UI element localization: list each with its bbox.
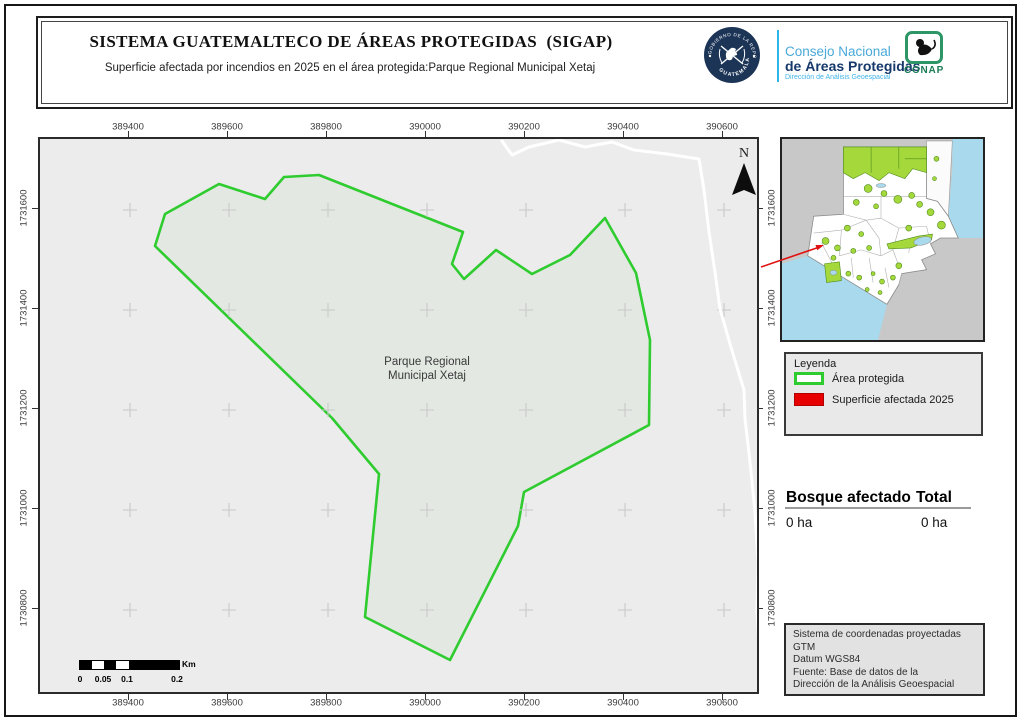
axis-tick bbox=[722, 694, 723, 700]
axis-tick bbox=[32, 308, 38, 309]
axis-tick bbox=[757, 308, 763, 309]
axis-tick bbox=[32, 508, 38, 509]
conap-logo-label: CONAP bbox=[901, 65, 947, 76]
coordinate-system-info-box: Sistema de coordenadas proyectadas GTM D… bbox=[784, 623, 985, 696]
stats-header-bosque: Bosque afectado bbox=[786, 489, 911, 507]
info-line: Fuente: Base de datos de la bbox=[793, 667, 976, 680]
axis-tick bbox=[524, 131, 525, 137]
map-canvas: Parque Regional Municipal Xetaj N bbox=[40, 139, 757, 692]
y-axis-label-right: 1731600 bbox=[767, 190, 778, 227]
government-seal-icon: GOBIERNO DE LA REPÚBLICA GUATEMALA bbox=[703, 26, 761, 84]
protected-area-polygon bbox=[155, 175, 650, 660]
stats-value-total: 0 ha bbox=[921, 515, 947, 530]
axis-tick bbox=[326, 131, 327, 137]
info-line: Datum WGS84 bbox=[793, 654, 976, 667]
y-axis-label-right: 1731200 bbox=[767, 390, 778, 427]
y-axis-label-right: 1731000 bbox=[767, 490, 778, 527]
conap-logo-icon bbox=[905, 31, 943, 64]
y-axis-label-left: 1731600 bbox=[19, 190, 30, 227]
scale-label-02: 0.2 bbox=[171, 674, 183, 684]
scale-label-0: 0 bbox=[78, 674, 83, 684]
org-department: Dirección de Análisis Geoespacial bbox=[785, 74, 890, 81]
scale-label-01: 0.1 bbox=[121, 674, 133, 684]
affected-area-swatch bbox=[794, 393, 824, 406]
y-axis-label-right: 1730800 bbox=[767, 590, 778, 627]
stats-value-bosque: 0 ha bbox=[786, 515, 812, 530]
axis-tick bbox=[425, 694, 426, 700]
axis-tick bbox=[227, 694, 228, 700]
axis-tick bbox=[32, 408, 38, 409]
axis-tick bbox=[128, 131, 129, 137]
axis-tick bbox=[722, 131, 723, 137]
svg-text:N: N bbox=[739, 146, 749, 161]
legend: Leyenda Área protegida Superficie afecta… bbox=[784, 352, 983, 436]
axis-tick bbox=[623, 694, 624, 700]
page-subtitle: Superficie afectada por incendios en 202… bbox=[60, 62, 640, 74]
protected-area-swatch bbox=[794, 372, 824, 385]
park-label-line2: Municipal Xetaj bbox=[388, 370, 466, 382]
axis-tick bbox=[128, 694, 129, 700]
axis-tick bbox=[227, 131, 228, 137]
axis-tick bbox=[757, 508, 763, 509]
stats-underline bbox=[785, 507, 971, 509]
axis-tick bbox=[32, 208, 38, 209]
main-map: Parque Regional Municipal Xetaj N bbox=[38, 137, 759, 694]
info-line: Sistema de coordenadas proyectadas bbox=[793, 629, 976, 642]
axis-tick bbox=[524, 694, 525, 700]
axis-tick bbox=[32, 608, 38, 609]
stats-header-total: Total bbox=[916, 489, 952, 507]
info-line: Dirección de la Análisis Geoespacial bbox=[793, 679, 976, 692]
axis-tick bbox=[757, 608, 763, 609]
header-divider bbox=[777, 30, 779, 82]
legend-title: Leyenda bbox=[794, 358, 836, 370]
locator-arrow-icon bbox=[755, 238, 835, 274]
page-title: SISTEMA GUATEMALTECO DE ÁREAS PROTEGIDAS… bbox=[36, 32, 666, 52]
legend-item-label: Superficie afectada 2025 bbox=[832, 394, 954, 406]
axis-tick bbox=[757, 408, 763, 409]
y-axis-label-left: 1731000 bbox=[19, 490, 30, 527]
legend-item-label: Área protegida bbox=[832, 373, 904, 385]
org-name-line1: Consejo Nacional bbox=[785, 44, 891, 59]
scale-label-005: 0.05 bbox=[95, 674, 112, 684]
y-axis-label-left: 1731400 bbox=[19, 290, 30, 327]
info-line: GTM bbox=[793, 642, 976, 655]
y-axis-label-left: 1730800 bbox=[19, 590, 30, 627]
axis-tick bbox=[425, 131, 426, 137]
inset-caribbean-sea bbox=[948, 139, 983, 238]
axis-tick bbox=[623, 131, 624, 137]
scale-bar bbox=[79, 660, 180, 670]
axis-tick bbox=[757, 208, 763, 209]
scale-bar-unit: Km bbox=[182, 659, 196, 669]
y-axis-label-right: 1731400 bbox=[767, 290, 778, 327]
park-label-line1: Parque Regional bbox=[384, 356, 470, 368]
axis-tick bbox=[326, 694, 327, 700]
north-arrow-icon: N bbox=[732, 146, 756, 195]
y-axis-label-left: 1731200 bbox=[19, 390, 30, 427]
